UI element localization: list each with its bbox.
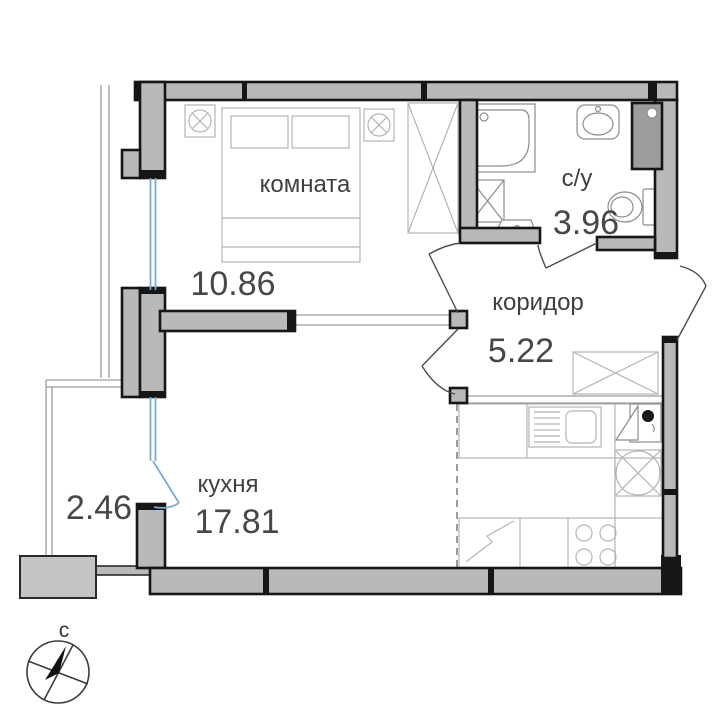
left-pier-outer: [122, 288, 140, 397]
interior-wall-room-kitchen: [160, 311, 295, 331]
wall-joint: [137, 504, 165, 510]
balcony-door-leaf: [153, 461, 179, 503]
ceiling-light-icon: [364, 109, 394, 141]
fridge-circle-icon: [615, 450, 661, 496]
appliance-diagonal-mark: [466, 521, 514, 562]
room-door-leaf: [429, 254, 458, 313]
floor-plan: комната 10.86 с/у 3.96 коридор 5.22 кухн…: [0, 0, 722, 723]
wall-joint: [648, 82, 657, 100]
room-label: комната: [260, 171, 351, 198]
burner: [600, 549, 616, 565]
right-wall-lower: [663, 337, 677, 558]
wall-joint: [488, 568, 494, 594]
corner-basin-icon: [616, 404, 661, 442]
kitchen-sink-icon: [529, 407, 601, 447]
floor-plan-page: комната 10.86 с/у 3.96 коридор 5.22 кухн…: [0, 0, 722, 723]
room-door-swing: [429, 243, 460, 254]
wall-joint: [140, 288, 165, 294]
wall-joint: [663, 337, 677, 343]
building-outline-lines: [101, 85, 109, 378]
compass: с: [27, 619, 89, 703]
burner: [576, 549, 592, 565]
wall-joint: [263, 568, 269, 594]
wall-joint: [140, 391, 165, 397]
ceiling-light-icon: [185, 105, 215, 137]
corridor-wardrobe: [573, 352, 658, 394]
sink-bowl: [566, 411, 596, 443]
left-pier: [140, 288, 165, 397]
left-wall-upper: [140, 82, 165, 178]
left-wall-stub: [122, 150, 140, 178]
bathroom-area: 3.96: [553, 204, 619, 242]
bathroom-label: с/у: [562, 165, 593, 192]
stove-icon: [576, 525, 616, 565]
sink-unit: [529, 407, 601, 447]
corridor-wall-stub: [450, 388, 467, 403]
wall-joint: [663, 489, 677, 495]
bathroom-door-leaf: [546, 243, 597, 268]
kitchen-area: 17.81: [194, 503, 279, 541]
wardrobe: [408, 103, 458, 233]
faucet-dot: [642, 410, 654, 422]
wall-joint: [140, 170, 165, 178]
corridor-wall-stub: [450, 311, 467, 328]
left-pier-lower: [137, 504, 165, 568]
compass-north-label: с: [59, 619, 70, 642]
bathroom-door-swing: [538, 245, 546, 268]
bathroom-left-wall: [460, 100, 477, 236]
sink-tap: [596, 107, 601, 112]
wall-joint: [421, 82, 427, 100]
burner: [576, 525, 592, 541]
balcony-area: 2.46: [66, 489, 132, 527]
kitchen-fixtures: [457, 404, 663, 568]
basin-wedge: [616, 406, 638, 440]
entrance-door-leaf: [677, 286, 706, 340]
sink-bowl: [583, 113, 613, 135]
bathroom-bottom-wall-left: [460, 228, 540, 243]
corridor-area: 5.22: [488, 332, 554, 370]
balcony: [20, 369, 150, 598]
wall-corner: [661, 555, 681, 594]
sink-icon: [577, 105, 619, 139]
shower-tray-icon: [470, 104, 535, 172]
kitchen-door-leaf: [422, 329, 458, 366]
top-wall: [135, 82, 677, 100]
room-area: 10.86: [190, 265, 275, 303]
wall-joint: [655, 252, 677, 259]
counter-bottom: [459, 518, 663, 568]
shower-drain: [480, 113, 488, 121]
duct-pipe-icon: [647, 108, 657, 118]
thin-partitions: [295, 315, 663, 403]
burner: [600, 525, 616, 541]
entrance-door-swing: [680, 266, 706, 286]
corridor-label: коридор: [492, 289, 584, 316]
balcony-slab: [20, 556, 96, 598]
wall-joint: [287, 311, 295, 331]
bed-pillow: [231, 116, 288, 148]
bed-pillow: [292, 116, 349, 148]
bottom-wall: [150, 568, 681, 594]
wall-joint: [242, 82, 247, 100]
kitchen-label: кухня: [197, 471, 258, 498]
